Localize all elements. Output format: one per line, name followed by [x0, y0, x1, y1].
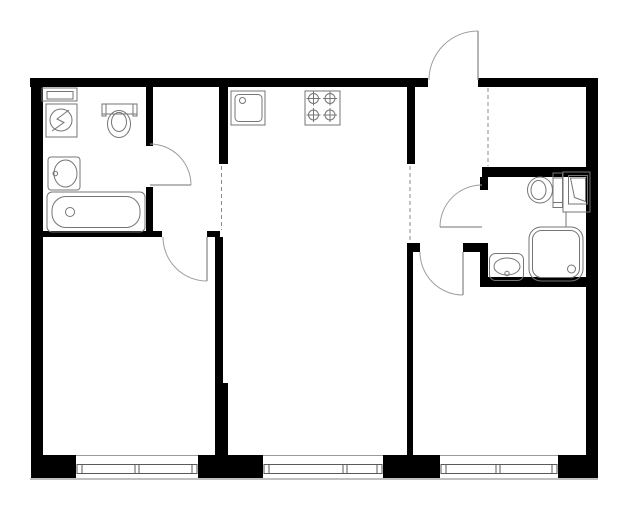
washing-machine: [46, 104, 77, 137]
outer-wall-bottom-pier-1: [31, 455, 76, 478]
middle-room-window: [263, 455, 383, 478]
bathroom1-door-swing-arc: [150, 144, 191, 185]
left-room-right-wall-upper: [215, 237, 223, 383]
left-room-door-swing-arc: [163, 237, 207, 281]
left-room-window: [76, 455, 198, 478]
outer-wall-top-left-segment: [30, 78, 428, 87]
zone-boundaries: [222, 88, 489, 242]
toilet-bathroom1: [102, 104, 137, 138]
water-heater: [563, 172, 590, 227]
kitchen-sink: [231, 91, 265, 125]
left-room-door-jamb-stub: [207, 231, 220, 237]
kitchen-right-wall: [407, 87, 415, 164]
washbasin-bathroom1: [48, 157, 80, 190]
bathroom1-door: [150, 144, 191, 185]
bathtub: [47, 192, 145, 232]
bathroom2-door: [440, 185, 482, 227]
right-room-door: [420, 252, 463, 295]
bathroom1-right-wall-upper: [146, 87, 153, 146]
hallway-door-stub-right: [463, 243, 482, 252]
right-room-window-frame: [441, 465, 557, 474]
outer-wall-bottom-pier-2: [198, 455, 263, 478]
outer-wall-left: [31, 78, 43, 478]
right-room-window: [440, 455, 558, 478]
middle-room-window-frame: [264, 465, 382, 474]
entrance-door-swing-arc: [429, 31, 478, 80]
left-room-right-wall-lower: [215, 383, 228, 455]
kitchen-left-wall: [219, 87, 228, 164]
left-room-window-frame: [77, 465, 197, 474]
toilet-bathroom2: [528, 173, 563, 208]
entrance-door: [429, 31, 478, 80]
washbasin-bathroom2: [490, 254, 524, 281]
floor-plan: [0, 0, 629, 512]
floor-plan-svg: [0, 0, 629, 512]
walls: [30, 78, 598, 478]
bathroom2-left-wall-upper: [480, 177, 488, 190]
left-room-door: [163, 237, 207, 281]
middle-right-room-divider-wall: [407, 252, 413, 455]
outer-wall-bottom-pier-4: [558, 455, 598, 478]
outer-wall-bottom-pier-3: [383, 455, 440, 478]
bathroom2-door-swing-arc: [440, 185, 482, 227]
outer-wall-top-right-segment: [478, 78, 598, 87]
bathroom1-right-wall-lower: [146, 187, 153, 237]
hallway-door-stub-left: [407, 243, 420, 252]
shower-tray: [529, 227, 583, 281]
bathroom2-bottom-wall: [482, 277, 598, 287]
stove: [305, 91, 340, 125]
right-room-door-swing-arc: [420, 252, 463, 295]
bathroom1-shelf: [42, 88, 77, 101]
